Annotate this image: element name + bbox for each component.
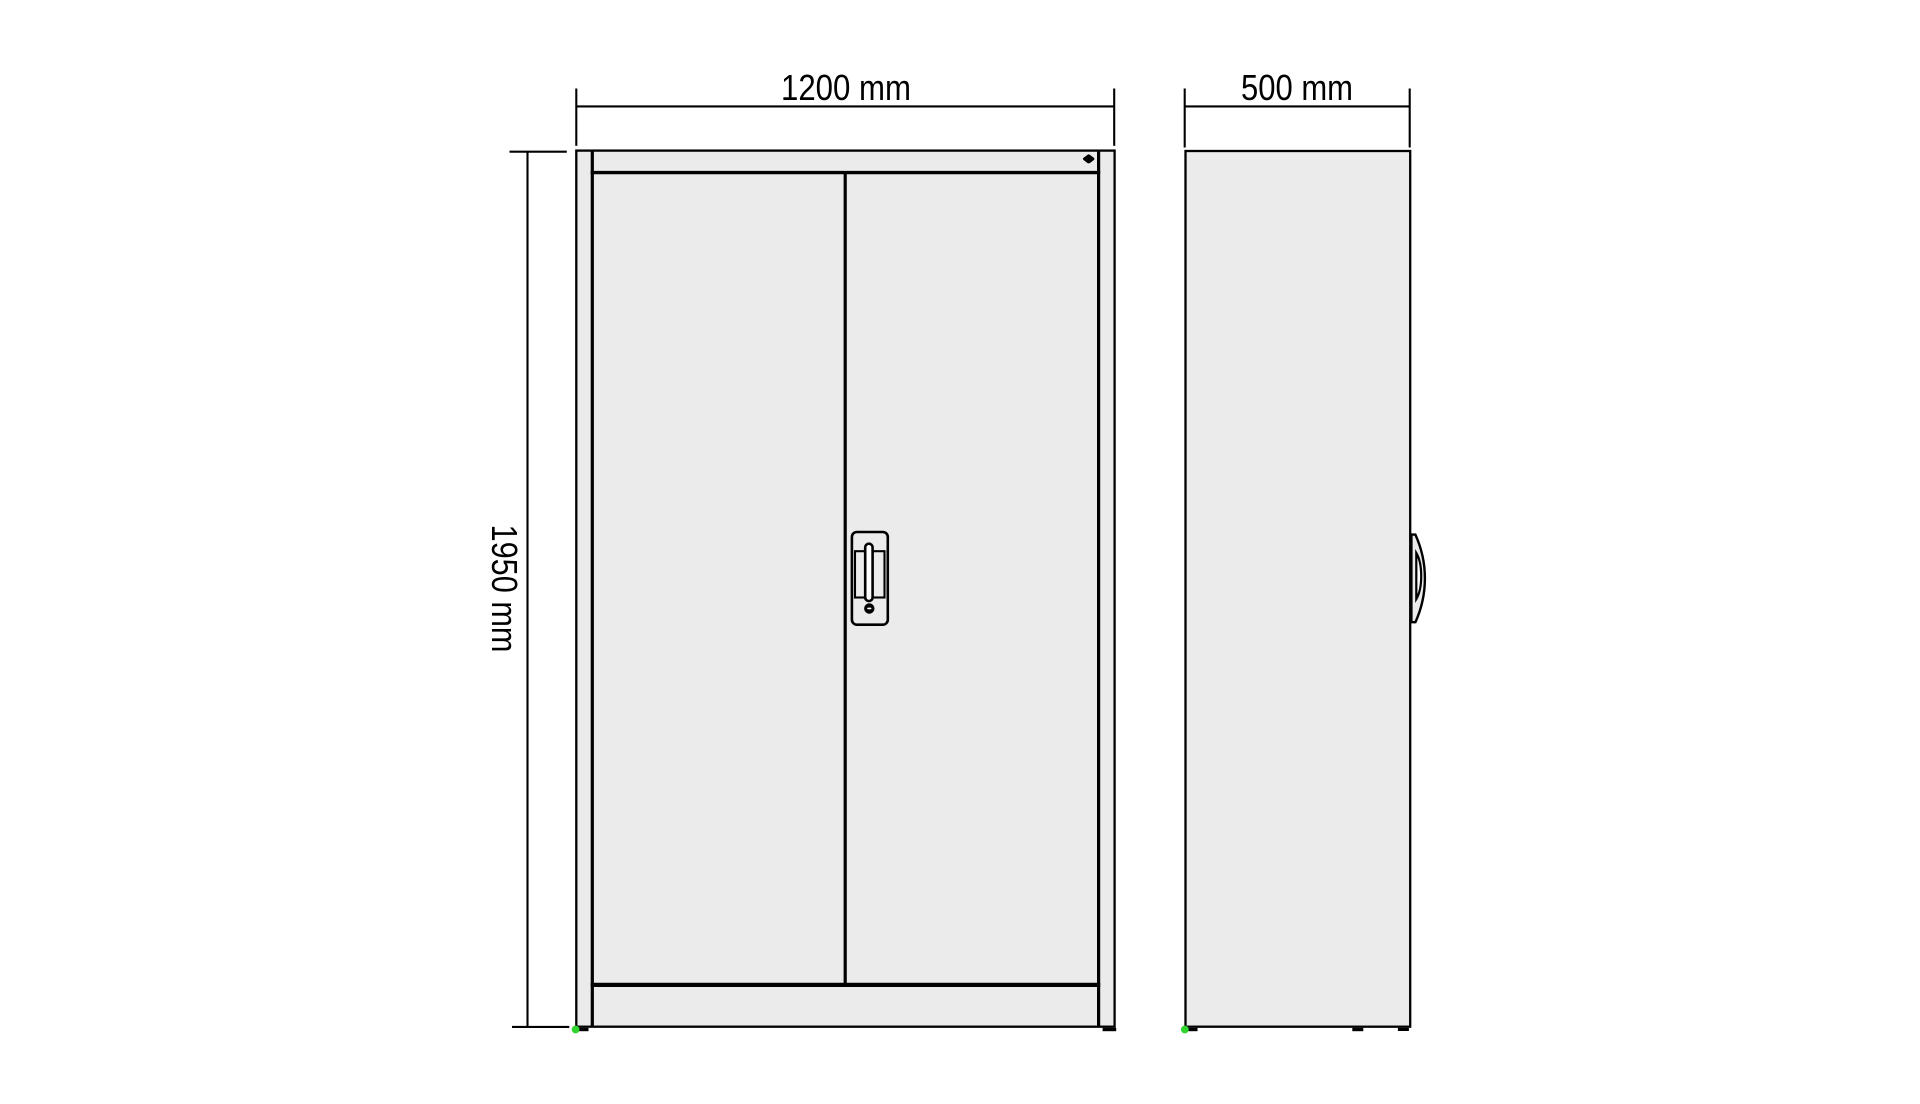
- svg-text:1200 mm: 1200 mm: [781, 67, 911, 108]
- svg-text:1950 mm: 1950 mm: [484, 525, 525, 653]
- svg-text:500 mm: 500 mm: [1241, 67, 1353, 108]
